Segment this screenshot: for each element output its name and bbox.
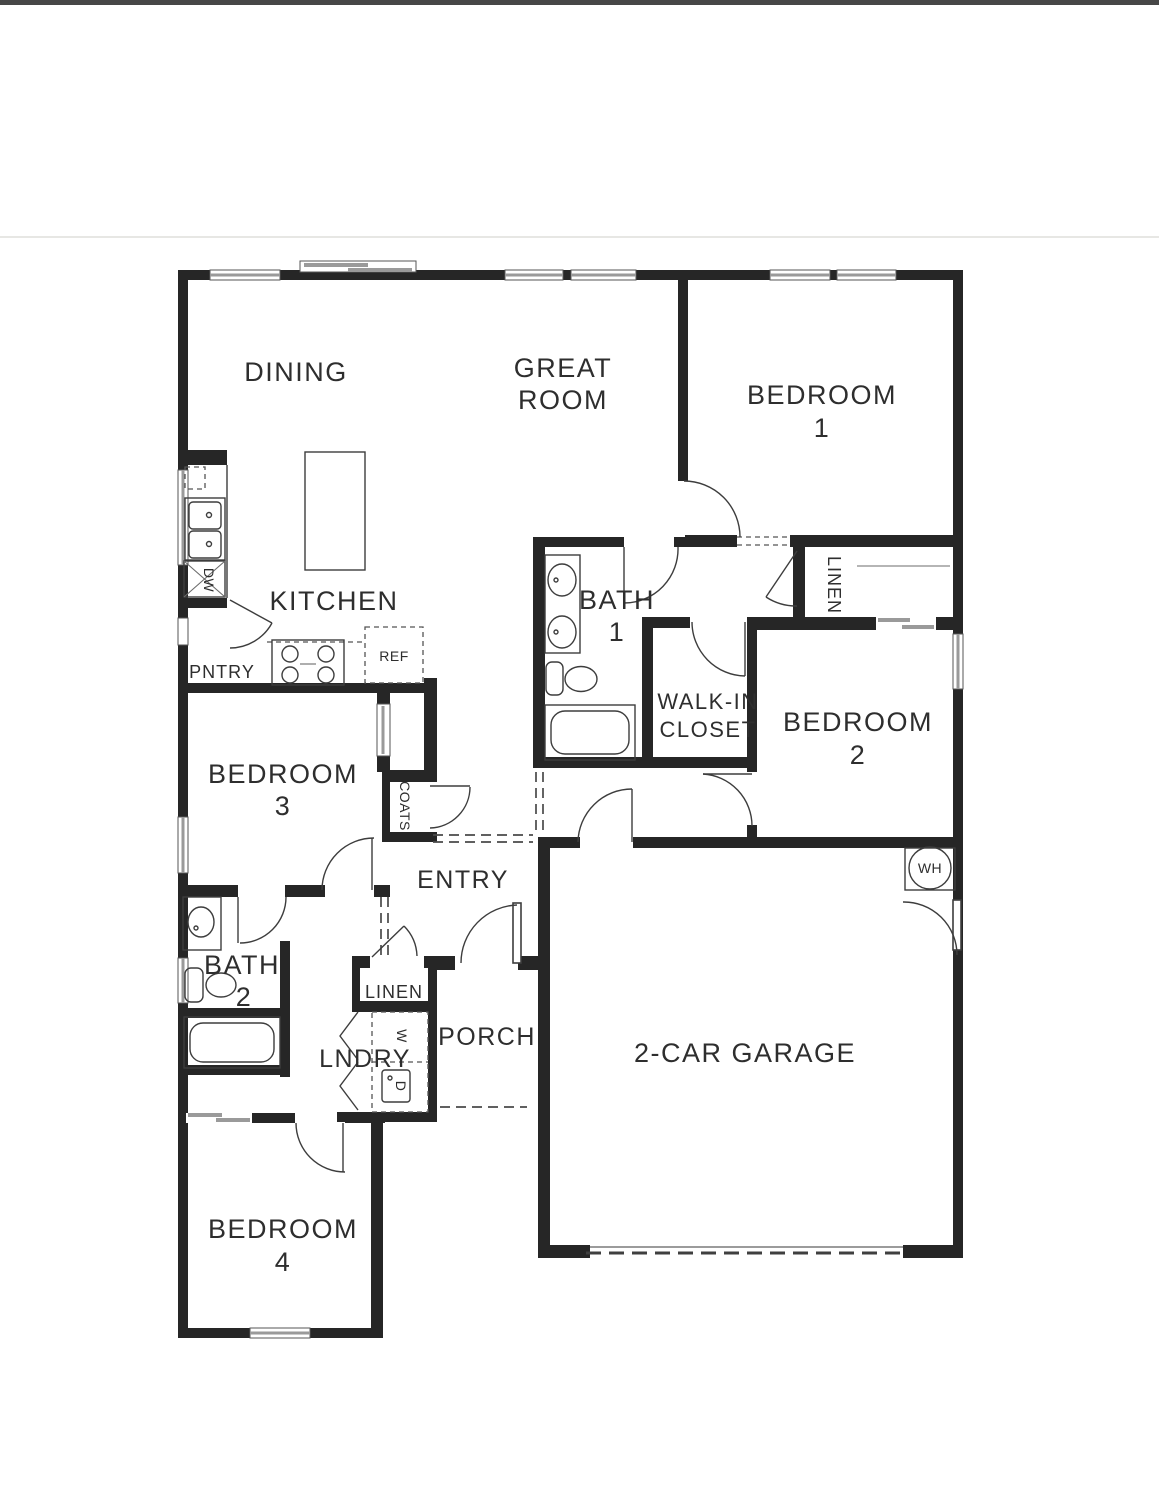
door-bath2 (238, 897, 286, 943)
window-greatroom-2 (571, 270, 636, 280)
door-hall-privacy (372, 926, 417, 957)
window-dining (210, 270, 280, 280)
door-garage-hall (578, 789, 632, 842)
room-label-laundry: LNDRY (319, 1045, 411, 1073)
windows (178, 261, 963, 1338)
window-bedroom1-2 (837, 270, 896, 280)
room-label-bath2: BATH (204, 950, 280, 980)
room-label-bath1-number: 1 (609, 617, 626, 647)
room-label-kitchen: KITCHEN (269, 586, 398, 616)
label-refrigerator: REF (379, 648, 409, 664)
bath1-toilet (546, 662, 597, 695)
room-label-entry: ENTRY (417, 866, 509, 894)
room-label-bath2-number: 2 (236, 982, 253, 1012)
door-bedroom3 (322, 838, 374, 890)
room-label-bedroom2: BEDROOM (783, 707, 933, 737)
room-label-walkin-line1: WALK-IN (657, 689, 758, 714)
label-pantry: PNTRY (189, 662, 255, 682)
bypass-doors-bedroom2-closet (876, 617, 936, 630)
door-garage-side (903, 900, 961, 955)
kitchen-island (305, 452, 365, 570)
door-linen-upper (766, 551, 797, 606)
room-label-bedroom4: BEDROOM (208, 1214, 358, 1244)
window-bedroom1-1 (770, 270, 830, 280)
door-coats (430, 786, 470, 828)
room-label-bedroom1-number: 1 (814, 413, 831, 443)
room-label-great-line1: GREAT (514, 353, 613, 383)
door-pantry (230, 600, 272, 648)
window-greatroom-1 (505, 270, 563, 280)
room-label-great-line2: ROOM (518, 385, 608, 415)
bath2-bathtub (184, 1017, 280, 1068)
window-pantry-thin (178, 618, 188, 645)
floor-plan-page: DINING GREAT ROOM BEDROOM 1 KITCHEN BATH… (0, 0, 1159, 1499)
label-linen-lower: LINEN (365, 982, 423, 1002)
window-bedroom2 (953, 634, 963, 689)
room-label-bedroom3-number: 3 (275, 791, 292, 821)
room-label-bedroom2-number: 2 (850, 740, 867, 770)
window-kitchen-sink (178, 470, 188, 565)
door-bedroom4 (296, 1123, 345, 1172)
room-label-porch: PORCH (438, 1023, 536, 1051)
bath1-vanity (545, 555, 580, 653)
label-dishwasher: DW (201, 568, 217, 593)
door-bedroom2 (703, 774, 752, 826)
dashed-wall-segment-bedroom1 (737, 535, 790, 547)
window-bay-offset (300, 261, 416, 272)
door-front-entry (461, 903, 521, 963)
window-bedroom3 (178, 817, 188, 873)
room-label-bedroom4-number: 4 (275, 1247, 292, 1277)
window-bedroom4 (250, 1328, 310, 1338)
floor-plan-drawing: DINING GREAT ROOM BEDROOM 1 KITCHEN BATH… (0, 0, 1159, 1499)
bath1-bathtub (545, 705, 635, 760)
room-label-dining: DINING (244, 357, 348, 387)
sliding-doors-bedroom4-closet (186, 1113, 252, 1123)
window-bath2 (178, 958, 188, 1003)
label-dryer: D (393, 1081, 409, 1092)
room-labels: DINING GREAT ROOM BEDROOM 1 KITCHEN BATH… (189, 353, 942, 1277)
room-label-garage: 2-CAR GARAGE (634, 1038, 856, 1068)
opening-bedroom3-wall (377, 704, 390, 756)
room-label-bath1: BATH (579, 585, 655, 615)
door-walkin-closet (692, 622, 745, 676)
room-label-bedroom1: BEDROOM (747, 380, 897, 410)
stove (272, 640, 344, 685)
door-bedroom1 (684, 481, 740, 537)
label-water-heater: WH (918, 860, 942, 876)
walls (178, 270, 963, 1338)
label-coats: COATS (397, 781, 413, 831)
bath2-vanity (183, 897, 221, 950)
room-label-bedroom3: BEDROOM (208, 759, 358, 789)
kitchen-sink (185, 498, 225, 560)
room-label-walkin-line2: CLOSET (659, 717, 756, 742)
label-linen-upper: LINEN (824, 556, 844, 614)
label-washer: W (394, 1029, 410, 1043)
